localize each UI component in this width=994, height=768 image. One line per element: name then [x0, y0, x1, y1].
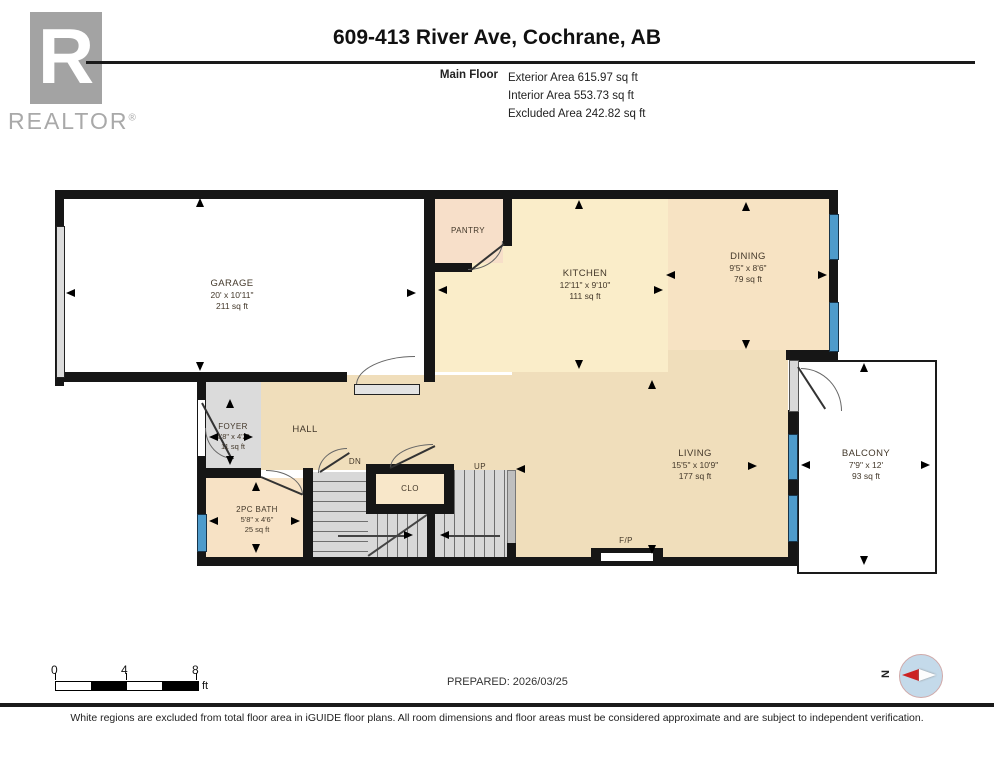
interior-area: Interior Area 553.73 sq ft [508, 87, 728, 105]
dimension-arrow [801, 461, 810, 469]
dimension-arrow [575, 360, 583, 369]
scale-tick [196, 673, 197, 680]
wall-pantry-right [503, 190, 512, 246]
living-dims: 15'5" x 10'9" [672, 460, 719, 471]
garage-name: GARAGE [210, 278, 253, 290]
dimension-arrow [66, 289, 75, 297]
floor-plan-page: R REALTOR® 609-413 River Ave, Cochrane, … [0, 0, 994, 768]
realtor-logo: R [30, 12, 102, 104]
dimension-arrow [244, 433, 253, 441]
dimension-arrow [226, 399, 234, 408]
balcony-label: BALCONY 7'9" x 12' 93 sq ft [842, 448, 890, 482]
living-area: 177 sq ft [672, 471, 719, 482]
foyer-area: 11 sq ft [217, 442, 250, 452]
dimension-arrow [742, 202, 750, 211]
compass-north-label: N [880, 670, 892, 678]
dining-window-2 [829, 302, 839, 352]
dimension-arrow [252, 544, 260, 553]
hall-label: HALL [292, 424, 317, 436]
compass-needle-white [919, 669, 936, 681]
excluded-area: Excluded Area 242.82 sq ft [508, 105, 728, 123]
bath-window [197, 514, 207, 552]
stairs-up-text: UP [474, 462, 486, 472]
floor-label: Main Floor [398, 69, 498, 81]
wall-top [55, 190, 838, 199]
dimension-arrow [407, 289, 416, 297]
stairs-down-arrow-line [338, 535, 408, 537]
closet-label: CLO [401, 484, 419, 494]
bath-dims: 5'8" x 4'6" [236, 515, 278, 525]
balcony-area: 93 sq ft [842, 471, 890, 482]
stairs-up-arrow [440, 531, 449, 539]
dimension-arrow [860, 363, 868, 372]
dimension-arrow [575, 200, 583, 209]
bath-area: 25 sq ft [236, 525, 278, 535]
closet-name: CLO [401, 484, 419, 494]
living-name: LIVING [672, 448, 719, 460]
scale-segment [56, 682, 91, 690]
stairs-down [313, 472, 368, 557]
living-window-1 [788, 434, 798, 480]
stairs-down-arrow [404, 531, 413, 539]
scale-tick [126, 673, 127, 680]
garage-area: 211 sq ft [210, 301, 253, 312]
wall-living-right [788, 540, 797, 566]
dimension-arrow [860, 556, 868, 565]
fireplace-label: F/P [619, 536, 633, 546]
living-floor [512, 372, 788, 557]
dimension-arrow [196, 362, 204, 371]
dining-dims: 9'5" x 8'6" [729, 263, 766, 274]
page-title: 609-413 River Ave, Cochrane, AB [197, 26, 797, 50]
wall-garage-kitchen [424, 190, 435, 382]
hall-name: HALL [292, 424, 317, 436]
scale-tick [55, 673, 56, 680]
wall-bath-top [197, 468, 261, 478]
pantry-name: PANTRY [451, 226, 485, 236]
scale-bar [55, 681, 199, 691]
scale-segment [127, 682, 162, 690]
dimension-arrow [196, 198, 204, 207]
realtor-logo-word: REALTOR® [8, 108, 138, 135]
wall-stair-stub [507, 543, 516, 559]
wall-dining-right [829, 190, 838, 214]
scale-unit: ft [202, 680, 208, 692]
dimension-arrow [438, 286, 447, 294]
dining-lower-floor [668, 350, 788, 372]
dimension-arrow [226, 456, 234, 465]
kitchen-name: KITCHEN [560, 268, 611, 280]
dimension-arrow [291, 517, 300, 525]
dimension-arrow [209, 517, 218, 525]
compass-needle-red [902, 669, 919, 681]
dimension-arrow [648, 545, 656, 554]
living-window-2 [788, 495, 798, 542]
garage-entry-door-leaf [354, 384, 420, 395]
bath-label: 2PC BATH 5'8" x 4'6" 25 sq ft [236, 505, 278, 535]
stairs-down-label: DN [349, 457, 361, 467]
stairs-up-arrow-line [448, 535, 500, 537]
dining-label: DINING 9'5" x 8'6" 79 sq ft [729, 251, 766, 285]
balcony-name: BALCONY [842, 448, 890, 460]
stairs-down-text: DN [349, 457, 361, 467]
foyer-name: FOYER [217, 422, 250, 432]
stairs-up-rail [507, 470, 516, 547]
pantry-label: PANTRY [451, 226, 485, 236]
living-label: LIVING 15'5" x 10'9" 177 sq ft [672, 448, 719, 482]
dimension-arrow [921, 461, 930, 469]
dimension-arrow [648, 380, 656, 389]
fireplace-text: F/P [619, 536, 633, 546]
wall-dining-right [829, 258, 838, 302]
exterior-area: Exterior Area 615.97 sq ft [508, 69, 728, 87]
dimension-arrow [516, 465, 525, 473]
dimension-arrow [252, 482, 260, 491]
dimension-arrow [818, 271, 827, 279]
kitchen-area: 111 sq ft [560, 291, 611, 302]
dining-area: 79 sq ft [729, 274, 766, 285]
balcony-dims: 7'9" x 12' [842, 460, 890, 471]
realtor-logo-text: REALTOR [8, 108, 129, 134]
garage-dims: 20' x 10'11" [210, 290, 253, 301]
dimension-arrow [666, 271, 675, 279]
wall-pantry-bottom [424, 263, 472, 272]
dimension-arrow [209, 433, 218, 441]
registered-mark: ® [129, 112, 138, 123]
realtor-logo-r-icon: R [38, 17, 94, 95]
footer-divider [0, 703, 994, 707]
scale-segment [162, 682, 198, 690]
fireplace-inner [601, 553, 653, 561]
wall-living-right [788, 478, 797, 495]
dimension-arrow [654, 286, 663, 294]
stairs-up-label: UP [474, 462, 486, 472]
wall-bottom [197, 557, 797, 566]
area-stats: Exterior Area 615.97 sq ft Interior Area… [508, 69, 728, 123]
disclaimer-text: White regions are excluded from total fl… [0, 712, 994, 724]
prepared-date: PREPARED: 2026/03/25 [447, 676, 568, 688]
garage-door [56, 226, 65, 378]
wall-living-right [788, 410, 797, 434]
dimension-arrow [748, 462, 757, 470]
garage-label: GARAGE 20' x 10'11" 211 sq ft [210, 278, 253, 312]
dimension-arrow [742, 340, 750, 349]
bath-name: 2PC BATH [236, 505, 278, 515]
dining-window-1 [829, 214, 839, 260]
kitchen-dims: 12'11" x 9'10" [560, 280, 611, 291]
wall-bath-right [303, 468, 313, 566]
dining-name: DINING [729, 251, 766, 263]
title-divider [86, 61, 975, 64]
garage-entry-swing-arc [356, 356, 415, 385]
kitchen-label: KITCHEN 12'11" x 9'10" 111 sq ft [560, 268, 611, 302]
scale-segment [91, 682, 127, 690]
